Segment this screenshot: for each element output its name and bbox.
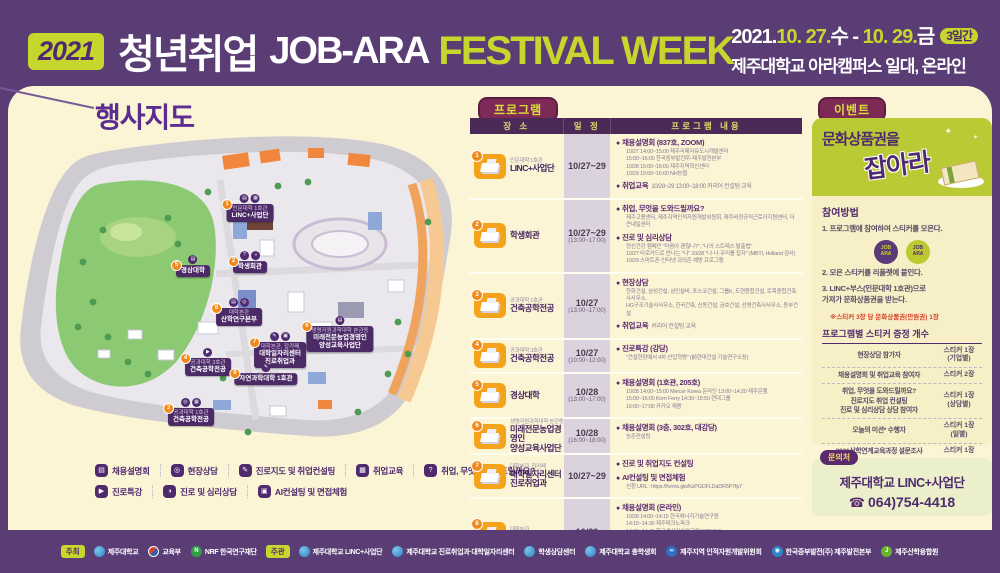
date-year: 2021. [731, 26, 776, 48]
sponsor-logo: NNRF 한국연구재단 [191, 546, 257, 557]
venue-number: 3 [471, 289, 483, 301]
header-bar: 2021 청년취업 JOB-ARA FESTIVAL WEEK 2021.10.… [0, 0, 1000, 88]
schedule-cell: 10/27(13:00~17:00) [564, 274, 610, 338]
venue-name: LINC+사업단 [232, 212, 269, 220]
place-texts: 공과대학 3호관건축공학전공 [510, 348, 554, 363]
phone-number: 064)754-4418 [868, 494, 955, 510]
진로지도-및-취업컨설팅-icon: ✎ [239, 464, 252, 477]
sponsor-logo: ◉한국중부발전(주) 제주발전본부 [772, 546, 872, 557]
schedule-entry: 10/27(13:00~17:00) [564, 298, 610, 314]
AI컨설팅-및-면접체험-icon: ▣ [258, 485, 271, 498]
venue-program-icons: ▤▦ [227, 194, 274, 203]
schedule-cell: 10/27~29 [564, 455, 610, 497]
venue-building-icon: 2 [474, 223, 506, 248]
venue-building-icon: 5 [474, 383, 506, 408]
nrf-logo-icon: N [191, 546, 202, 557]
item-title-text: 취업교육 [622, 321, 648, 330]
contact-organization: 제주대학교 LINC+사업단 [812, 472, 992, 491]
program-item-title: ●진로 및 취업지도 컨설팅 [616, 459, 798, 470]
program-item-detail: "건설현장에서 4차 산업혁명" (前현대건설 기술연구소장) [626, 355, 798, 362]
venue-pill: 8대학본관산학연구본부 [216, 308, 262, 326]
program-table: 장 소 일 정 프로그램 내용 1인문대학 1호관LINC+사업단10/27~2… [470, 118, 802, 573]
program-row: 5경상대학10/28(13:00~17:00)●채용설명회 (1호관, 205호… [470, 374, 802, 419]
program-item-title: ●채용설명회 (837호, ZOOM) [616, 138, 798, 149]
drop-logo-icon [392, 546, 403, 557]
program-item-detail: 16:00~17:00 카카오 채용 [626, 404, 798, 411]
map-venue-label: ?◑2학생회관 [233, 251, 267, 273]
content-cell: ●진로특강 (강당)"건설현장에서 4차 산업혁명" (前현대건설 기술연구소장… [610, 340, 802, 372]
program-type-icon: ✎ [261, 363, 270, 372]
sponsor-name: 제주대학교 [108, 547, 139, 557]
진로특강-icon: ▶ [95, 485, 108, 498]
sponsor-logo: 제주대학교 총학생회 [585, 546, 656, 557]
program-item: ●채용설명회 (837호, ZOOM)10/27 14:00~15:00 제주국… [616, 138, 798, 178]
program-item-title: ●진로특강 (강당) [616, 344, 798, 355]
program-type-icon: ▶ [203, 348, 212, 357]
schedule-cell: 10/28(16:00~18:00) [564, 419, 610, 453]
item-title-text: 현장상담 [622, 278, 648, 287]
infinity-logo-icon: ∞ [666, 546, 677, 557]
program-rows: 1인문대학 1호관LINC+사업단10/27~29●채용설명회 (837호, Z… [470, 134, 802, 573]
map-venue-label: ▤◎8대학본관산학연구본부 [216, 298, 262, 326]
bullet-icon: ● [616, 380, 620, 387]
schedule-date: 10/27~29 [564, 161, 610, 171]
venue-pill: 5경상대학 [176, 265, 210, 277]
poster-page: 2021 청년취업 JOB-ARA FESTIVAL WEEK 2021.10.… [0, 0, 1000, 573]
item-title-text: 채용설명회 (1호관, 205호) [622, 378, 700, 387]
venue-program-icons: ▤◎ [216, 298, 262, 307]
event-banner-line1: 문화상품권을 [822, 128, 899, 149]
program-item-title: ●채용설명회 (3층, 302호, 대강당) [616, 423, 798, 434]
title-korean: 청년취업 [118, 22, 257, 80]
content-cell: ●채용설명회 (1호관, 205호)10/28 14:00~15:00 Merc… [610, 374, 802, 417]
participation-step: 1. 프로그램에 참여하여 스티커를 모은다. [822, 224, 982, 235]
program-item-detail: 10/29 스마트폰·인터넷 과의존 예방 프로그램 [626, 258, 798, 265]
program-item-title: ●채용설명회 (온라인) [616, 503, 798, 514]
현장상담-icon: ◎ [171, 464, 184, 477]
schedule-date: 10/27 [564, 348, 610, 358]
item-title-text: 채용설명회 (837호, ZOOM) [622, 138, 704, 147]
bullet-icon: ● [616, 140, 620, 147]
sponsor-logo: 제주대학교 [94, 546, 139, 557]
event-card: 문화상품권을 잡아라 ✦ ✦ 참여방법 1. 프로그램에 참여하여 스티커를 모… [812, 118, 992, 446]
sticker-lime: JOB ARA [906, 240, 930, 264]
program-type-icon: ◎ [240, 298, 249, 307]
campus-map-illustration [8, 122, 468, 467]
채용설명회-icon: ▤ [95, 464, 108, 477]
item-title-text: 진로특강 (강당) [622, 344, 668, 353]
sponsor-logo: 학생상담센터 [524, 546, 575, 557]
place-texts: 경상대학 [510, 391, 539, 400]
program-item-detail: 제주고용센터, 제주지역인적자원개발위원회, 제주비정규직근로자지원센터, 더큰… [626, 215, 798, 230]
sticker-table: 현장상담 참가자스티커 1장 (기업별)채용설명회 및 취업교육 참여자스티커 … [822, 344, 982, 459]
venue-number: 4 [471, 339, 483, 351]
place-cell: 6생명자원과학대학 본관동미래전문농업경영인 양성교육사업단 [470, 419, 564, 453]
venue-program-icons: ✎▣ [254, 332, 306, 341]
place-name: LINC+사업단 [510, 164, 554, 173]
venue-number: 5 [471, 379, 483, 391]
venue-program-icons: ✎ [234, 363, 297, 372]
sticker-program: 채용설명회 및 취업교육 참여자 [822, 371, 936, 380]
program-row: 4공과대학 3호관건축공학전공10/27(10:00~12:00)●진로특강 (… [470, 340, 802, 374]
place-texts: 생명자원과학대학 본관동미래전문농업경영인 양성교육사업단 [510, 419, 564, 453]
program-item-title: ●진로 및 심리상담 [616, 233, 798, 244]
event-note: ※스티커 3장 당 문화상품권(만원권) 1장 [830, 311, 982, 321]
contact-phone: ☎064)754-4418 [812, 494, 992, 511]
schedule-date: 10/28 [564, 387, 610, 397]
bullet-icon: ● [616, 425, 620, 432]
sticker-table-row: 취업, 무엇을 도와드릴까요? 진로지도 취업 컨설팅 진로 및 심리상담 상담… [822, 384, 982, 419]
date-end-day: 금 [917, 26, 934, 48]
title-jobara: JOB-ARA [269, 30, 428, 73]
venue-number: 6 [301, 321, 312, 332]
program-item: ●채용설명회 (3층, 302호, 대강당)농촌컨설팅 [616, 423, 798, 441]
bullet-icon: ● [616, 206, 620, 213]
schedule-date: 10/27~29 [564, 471, 610, 481]
sponsor-name: 제주대학교 진로취업과·대학일자리센터 [406, 547, 514, 557]
map-venue-label: ▤▦1인문대학 1호관LINC+사업단 [227, 194, 274, 222]
venue-name: 자연과학대학 1호관 [239, 375, 292, 383]
venue-number: 9 [229, 368, 240, 379]
legend-item: ▦취업교육 [356, 464, 414, 477]
venue-program-icons: ◎▦ [168, 398, 214, 407]
venue-program-icons: ▤ [306, 316, 373, 325]
venue-name: 산학연구본부 [221, 316, 257, 324]
legend-item: ▤채용설명회 [95, 464, 161, 477]
program-item-title: ●취업, 무엇을 도와드릴까요? [616, 204, 798, 215]
campus-map: ▤▦1인문대학 1호관LINC+사업단?◑2학생회관◎▦3공과대학 1호관건축공… [8, 122, 468, 467]
sticker-count: 스티커 2장 [936, 371, 982, 380]
bullet-icon: ● [616, 235, 620, 242]
program-item: ●취업교육10/28~29 13:00~18:00 커리어 컨설팅 교육 [616, 181, 798, 192]
item-title-text: 진로 및 취업지도 컨설팅 [622, 459, 693, 468]
year-badge: 2021 [28, 33, 104, 70]
venue-number: 2 [471, 219, 483, 231]
진로-및-심리상담-icon: ◑ [163, 485, 176, 498]
content-cell: ●채용설명회 (837호, ZOOM)10/27 14:00~15:00 제주국… [610, 134, 802, 198]
venue-number: 1 [222, 199, 233, 210]
content-cell: ●현장상담한화건설, 삼성건설, 삼인설비, 포스코건설, 그룹K, 도현종합건… [610, 274, 802, 338]
sponsor-logo: 교육부 [148, 546, 180, 557]
map-venue-label: ▤6생명자원과학대학 본관동미래전문농업경영인 양성교육사업단 [306, 316, 373, 352]
date-start-day: 수 [830, 26, 847, 48]
place-cell: 3공과대학 1호관건축공학전공 [470, 274, 564, 338]
program-item-detail: 정신건강 캠페인 "마음아 괜찮니?", "나의 스트레스 탈출법" [626, 244, 798, 251]
legend-label: AI컨설팅 및 면접체험 [275, 486, 347, 498]
program-type-icon: ▦ [251, 194, 260, 203]
event-date-location: 2021.10. 27.수 - 10. 29.금3일간 제주대학교 아라캠퍼스 … [731, 20, 978, 77]
venue-number: 1 [471, 150, 483, 162]
venue-name: 건축공학전공 [173, 416, 209, 424]
venue-building-icon: 6 [474, 424, 506, 449]
place-cell: 7대학본관, 잡카페대학일자리센터 진로취업과 [470, 455, 564, 497]
schedule-cell: 10/28(13:00~17:00) [564, 374, 610, 417]
sponsor-logo: J제주산학융합원 [881, 546, 938, 557]
venue-name: 미래전문농업경영인 양성교육사업단 [311, 334, 368, 350]
program-item-detail: 15:00~16:00 Korn Ferry 14:30~15:50 현대그룹 [626, 396, 798, 403]
bullet-icon: ● [616, 183, 620, 190]
legend-label: 현장상담 [188, 465, 218, 477]
bullet-icon: ● [616, 346, 620, 353]
venue-pill: 9자연과학대학 1호관 [234, 373, 297, 385]
venue-name: 경상대학 [181, 267, 205, 275]
schedule-time: (13:00~17:00) [564, 308, 610, 314]
schedule-cell: 10/27~29 [564, 134, 610, 198]
place-texts: 공과대학 1호관건축공학전공 [510, 298, 554, 313]
program-item-detail: 14:15~14:30 제주테크노파크 [626, 521, 798, 528]
program-type-icon: ✎ [270, 332, 279, 341]
venue-pill: 1인문대학 1호관LINC+사업단 [227, 204, 274, 222]
취업교육-icon: ▦ [356, 464, 369, 477]
column-content: 프로그램 내용 [611, 118, 802, 134]
host-badge: 주최 [61, 545, 85, 558]
item-title-text: 진로 및 심리상담 [622, 233, 672, 242]
participation-step: 3. LINC+부스(인문대학 1호관)으로 가져가 문화상품권을 받는다. [822, 284, 982, 306]
map-venue-label: ◎▦3공과대학 1호관건축공학전공 [168, 398, 214, 426]
item-title-text: 채용설명회 (3층, 302호, 대강당) [622, 423, 717, 432]
sticker-table-title: 프로그램별 스티커 증정 개수 [822, 327, 982, 344]
sponsor-logo: ∞제주지역 인적자원개발위원회 [666, 546, 761, 557]
venue-number: 2 [228, 256, 239, 267]
program-item: ●진로 및 취업지도 컨설팅 [616, 459, 798, 470]
program-item: ●진로 및 심리상담정신건강 캠페인 "마음아 괜찮니?", "나의 스트레스 … [616, 233, 798, 266]
program-type-icon: ▦ [192, 398, 201, 407]
sticker-table-row: 현장상담 참가자스티커 1장 (기업별) [822, 344, 982, 369]
sticker-program: 취업, 무엇을 도와드릴까요? 진로지도 취업 컨설팅 진로 및 심리상담 상담… [822, 387, 936, 415]
program-item-detail: 10/29 15:00~16:00 NH농협 [626, 171, 798, 178]
program-type-icon: ◑ [251, 251, 260, 260]
participation-steps: 1. 프로그램에 참여하여 스티커를 모은다.JOB ARAJOB ARA2. … [822, 224, 982, 321]
program-row: 6생명자원과학대학 본관동미래전문농업경영인 양성교육사업단10/28(16:0… [470, 419, 802, 455]
schedule-entry: 10/28(16:00~18:00) [564, 428, 610, 444]
schedule-date: 10/27~29 [564, 228, 610, 238]
program-item: ●현장상담한화건설, 삼성건설, 삼인설비, 포스코건설, 그룹K, 도현종합건… [616, 278, 798, 318]
date-line: 2021.10. 27.수 - 10. 29.금3일간 [731, 20, 978, 49]
sparkle-icon: ✦ [944, 126, 952, 137]
program-item-detail: 한화건설, 삼성건설, 삼인설비, 포스코건설, 그룹K, 도현종합건설, 토목… [626, 289, 798, 304]
venue-building-icon: 3 [474, 293, 506, 318]
sticker-count: 스티커 1장 [936, 447, 982, 456]
program-item-detail: 15:00~16:00 한국중부발전㈜·제주발전본부 [626, 156, 798, 163]
sticker-table-row: 채용설명회 및 취업교육 참여자스티커 2장 [822, 368, 982, 384]
schedule-time: (16:00~18:00) [564, 438, 610, 444]
item-inline-text: 커리어 컨설팅 교육 [651, 324, 696, 330]
drop-logo-icon [299, 546, 310, 557]
place-name: 대학일자리센터 진로취업과 [510, 470, 561, 489]
program-row: 3공과대학 1호관건축공학전공10/27(13:00~17:00)●현장상담한화… [470, 274, 802, 340]
program-type-icon: ▣ [281, 332, 290, 341]
taegeuk-logo-icon [148, 546, 159, 557]
date-end: 10. 29. [863, 26, 917, 48]
program-item: ●진로특강 (강당)"건설현장에서 4차 산업혁명" (前현대건설 기술연구소장… [616, 344, 798, 362]
program-type-icon: ▤ [335, 316, 344, 325]
sponsor-name: 교육부 [162, 547, 180, 557]
place-texts: 학생회관 [510, 231, 539, 240]
place-name: 학생회관 [510, 231, 539, 240]
item-title-text: 채용설명회 (온라인) [622, 503, 681, 512]
schedule-entry: 10/27~29 [564, 161, 610, 171]
sparkle-icon: ✦ [973, 134, 978, 141]
program-item-detail: 농촌컨설팅 [626, 434, 798, 441]
venue-name: 건축공학전공 [190, 366, 226, 374]
schedule-cell: 10/27(10:00~12:00) [564, 340, 610, 372]
sponsor-logo: 제주대학교 진로취업과·대학일자리센터 [392, 546, 514, 557]
legend-label: 진로지도 및 취업컨설팅 [256, 465, 335, 477]
venue-pill: 6생명자원과학대학 본관동미래전문농업경영인 양성교육사업단 [306, 326, 373, 352]
schedule-entry: 10/27~29(13:00~17:00) [564, 228, 610, 244]
place-cell: 2학생회관 [470, 200, 564, 272]
program-type-icon: ▤ [229, 298, 238, 307]
program-type-icon: ▤ [240, 194, 249, 203]
legend-item: ▣AI컨설팅 및 면접체험 [258, 485, 357, 498]
footer-sponsor-bar: 주최제주대학교교육부NNRF 한국연구재단주관제주대학교 LINC+사업단제주대… [0, 530, 1000, 573]
column-place: 장 소 [470, 118, 564, 134]
legend-item: ▶진로특강 [95, 485, 153, 498]
sponsor-logo: 제주대학교 LINC+사업단 [299, 546, 383, 557]
map-venue-label: ✎9자연과학대학 1호관 [234, 363, 297, 385]
drop-logo-icon [94, 546, 105, 557]
place-name: 미래전문농업경영인 양성교육사업단 [510, 425, 564, 453]
program-row: 7대학본관, 잡카페대학일자리센터 진로취업과10/27~29●진로 및 취업지… [470, 455, 802, 499]
bullet-icon: ● [616, 323, 620, 330]
venue-number: 8 [211, 303, 222, 314]
program-item: ●채용설명회 (1호관, 205호)10/28 14:00~15:00 Merc… [616, 378, 798, 411]
schedule-entry: 10/27(10:00~12:00) [564, 348, 610, 364]
sponsor-name: NRF 한국연구재단 [205, 547, 257, 557]
organizer-badge: 주관 [266, 545, 290, 558]
venue-pill: 3공과대학 1호관건축공학전공 [168, 408, 214, 426]
program-item-detail: HG구조기술사사무소, 한국건축, 신동건설, 금호건설, 선명건축사사무소, … [626, 303, 798, 318]
date-start: 10. 27. [776, 26, 830, 48]
program-item-title: ●취업교육10/28~29 13:00~18:00 커리어 컨설팅 교육 [616, 181, 798, 192]
place-cell: 5경상대학 [470, 374, 564, 417]
sticker-count: 스티커 1장 (기업별) [936, 347, 982, 365]
legend-label: 채용설명회 [112, 465, 150, 477]
place-name: 건축공학전공 [510, 354, 554, 363]
bullet-icon: ● [616, 461, 620, 468]
column-schedule: 일 정 [564, 118, 611, 134]
location-line: 제주대학교 아라캠퍼스 일대, 온라인 [731, 52, 978, 77]
sticker-table-row: 오늘의 미션* 수행자스티커 1장 (일별) [822, 419, 982, 444]
content-cell: ●채용설명회 (3층, 302호, 대강당)농촌컨설팅 [610, 419, 802, 453]
schedule-time: (13:00~17:00) [564, 238, 610, 244]
drop-logo-icon [524, 546, 535, 557]
place-name: 경상대학 [510, 391, 539, 400]
date-separator: - [848, 26, 863, 48]
sponsor-name: 제주산학융합원 [895, 547, 938, 557]
program-type-icon: ▤ [188, 255, 197, 264]
schedule-date: 10/27 [564, 298, 610, 308]
place-name: 건축공학전공 [510, 304, 554, 313]
program-table-header: 장 소 일 정 프로그램 내용 [470, 118, 802, 134]
venue-number: 6 [471, 420, 483, 432]
contact-badge: 문의처 [820, 450, 858, 465]
venue-number: 7 [471, 460, 483, 472]
bullet-icon: ● [616, 475, 620, 482]
program-item-title: ●AI컨설팅 및 면접체험 [616, 473, 798, 484]
venue-number: 8 [471, 518, 483, 530]
program-item-title: ●현장상담 [616, 278, 798, 289]
sticker-count: 스티커 1장 (상담별) [936, 392, 982, 410]
venue-number: 5 [171, 260, 182, 271]
program-item-detail: 10/28 15:00~16:00 제주지역혁신센터 [626, 164, 798, 171]
venue-pill: 4공과대학 3호관건축공학전공 [185, 358, 231, 376]
sponsor-name: 제주지역 인적자원개발위원회 [680, 547, 761, 557]
sponsor-name: 제주대학교 LINC+사업단 [313, 547, 383, 557]
venue-number: 4 [180, 353, 191, 364]
item-title-text: 취업, 무엇을 도와드릴까요? [622, 204, 704, 213]
sponsor-name: 제주대학교 총학생회 [599, 547, 656, 557]
legend-item: ✎진로지도 및 취업컨설팅 [239, 464, 346, 477]
venue-number: 7 [249, 337, 260, 348]
program-type-icon: ? [240, 251, 249, 260]
program-item-title: ●채용설명회 (1호관, 205호) [616, 378, 798, 389]
venue-pill: 2학생회관 [233, 261, 267, 273]
participation-step: 2. 모은 스티커를 리플렛에 붙인다. [822, 268, 982, 279]
drop-logo-icon [585, 546, 596, 557]
schedule-date: 10/28 [564, 428, 610, 438]
venue-number: 3 [163, 403, 174, 414]
map-venue-label: ▤5경상대학 [176, 255, 210, 277]
sticker-program: 오늘의 미션* 수행자 [822, 426, 936, 435]
event-banner-line2: 잡아라 [862, 142, 932, 186]
legend-label: 진로 및 심리상담 [180, 486, 237, 498]
participation-title: 참여방법 [822, 204, 982, 219]
venue-building-icon: 4 [474, 343, 506, 368]
sponsor-name: 한국중부발전(주) 제주발전본부 [786, 547, 872, 557]
legend-label: 취업교육 [373, 465, 403, 477]
schedule-cell: 10/27~29(13:00~17:00) [564, 200, 610, 272]
sticker-program: 현장상담 참가자 [822, 351, 936, 360]
bullet-icon: ● [616, 505, 620, 512]
phone-icon: ☎ [849, 495, 865, 510]
place-texts: 대학본관, 잡카페대학일자리센터 진로취업과 [510, 464, 561, 489]
program-row: 2학생회관10/27~29(13:00~17:00)●취업, 무엇을 도와드릴까… [470, 200, 802, 274]
schedule-time: (10:00~12:00) [564, 358, 610, 364]
sticker-circles: JOB ARAJOB ARA [822, 240, 982, 264]
content-cell: ●취업, 무엇을 도와드릴까요?제주고용센터, 제주지역인적자원개발위원회, 제… [610, 200, 802, 272]
취업,-무엇을-도와드릴까요?-icon: ? [424, 464, 437, 477]
schedule-time: (13:00~17:00) [564, 397, 610, 403]
event-banner: 문화상품권을 잡아라 ✦ ✦ [812, 118, 992, 196]
leaf-logo-icon: J [881, 546, 892, 557]
content-cell: ●진로 및 취업지도 컨설팅●AI컨설팅 및 면접체험신청 URL : http… [610, 455, 802, 497]
bullet-icon: ● [616, 280, 620, 287]
place-cell: 1인문대학 1호관LINC+사업단 [470, 134, 564, 198]
title-festival-week: FESTIVAL WEEK [438, 29, 733, 74]
legend-label: 진로특강 [112, 486, 142, 498]
venue-building-icon: 7 [474, 464, 506, 489]
place-texts: 인문대학 1호관LINC+사업단 [510, 158, 554, 173]
venue-program-icons: ▶ [185, 348, 231, 357]
contact-card: 제주대학교 LINC+사업단 ☎064)754-4418 [812, 458, 992, 516]
schedule-entry: 10/27~29 [564, 471, 610, 481]
globe-logo-icon: ◉ [772, 546, 783, 557]
schedule-entry: 10/28(13:00~17:00) [564, 387, 610, 403]
item-inline-text: 10/28~29 13:00~18:00 커리어 컨설팅 교육 [651, 184, 751, 190]
duration-badge: 3일간 [940, 28, 978, 44]
program-type-icon: ◎ [181, 398, 190, 407]
program-row: 1인문대학 1호관LINC+사업단10/27~29●채용설명회 (837호, Z… [470, 134, 802, 200]
program-item-detail: 신청 URL : https://forms.gle/KzPGDFLDaDR5P… [626, 484, 798, 491]
venue-building-icon: 1 [474, 154, 506, 179]
venue-name: 학생회관 [238, 263, 262, 271]
program-item: ●취업, 무엇을 도와드릴까요?제주고용센터, 제주지역인적자원개발위원회, 제… [616, 204, 798, 230]
sticker-count: 스티커 1장 (일별) [936, 422, 982, 440]
sponsor-name: 학생상담센터 [538, 547, 575, 557]
legend-item: ◎현장상담 [171, 464, 229, 477]
item-title-text: 취업교육 [622, 181, 648, 190]
